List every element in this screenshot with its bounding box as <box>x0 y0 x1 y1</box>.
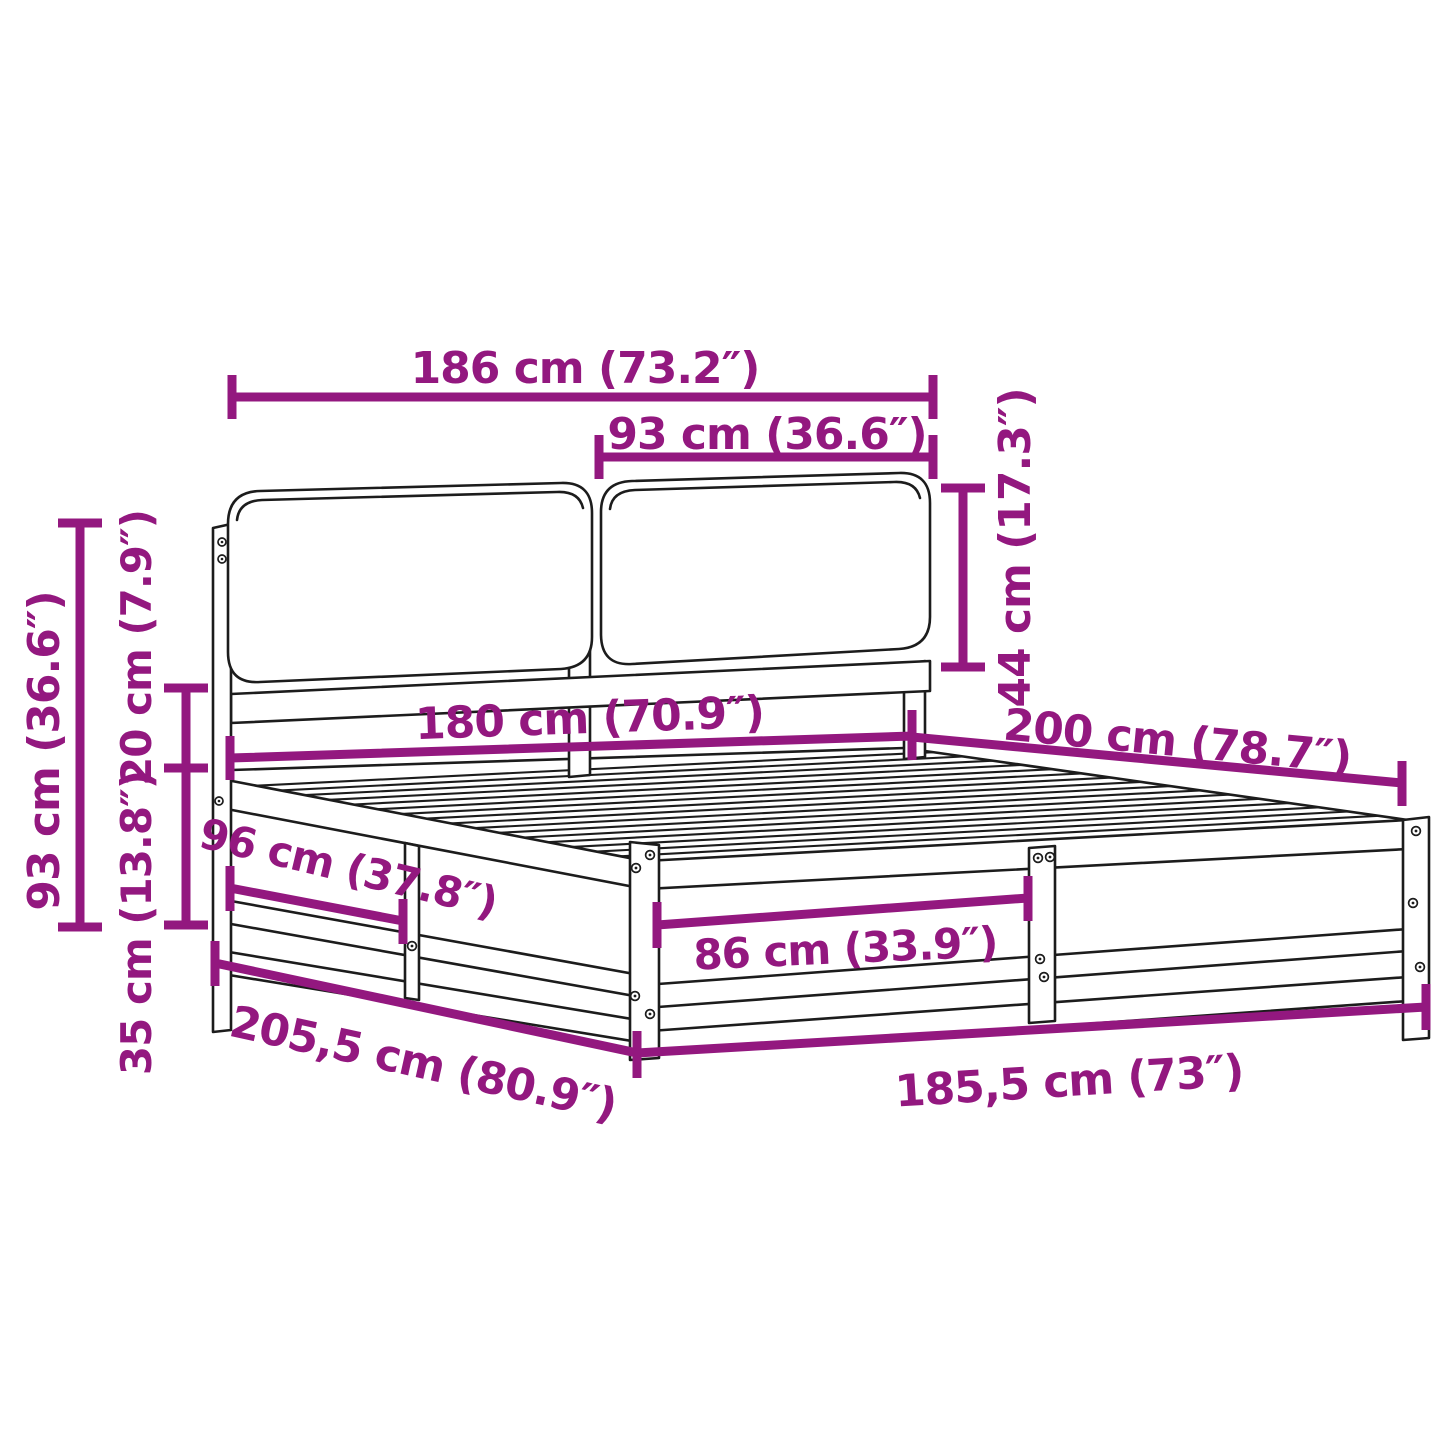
dim-gap-and-base-height: 20 cm (7.9″) 35 cm (13.8″) <box>112 510 208 1075</box>
dimension-label-headboard-total-width: 186 cm (73.2″) <box>411 343 760 394</box>
dim-cushion-width: 93 cm (36.6″) <box>599 409 933 479</box>
dimension-label-total-width: 185,5 cm (73″) <box>893 1045 1244 1117</box>
dim-cushion-height: 44 cm (17.3″) <box>941 388 1041 707</box>
dimension-label-cushion-width: 93 cm (36.6″) <box>607 409 926 460</box>
dim-side-section-length: 96 cm (37.8″) <box>195 809 502 944</box>
headboard-cushion-right <box>601 473 930 664</box>
dimension-label-headboard-height: 93 cm (36.6″) <box>19 591 70 910</box>
dim-headboard-total-width: 186 cm (73.2″) <box>232 343 933 419</box>
dimension-label-cushion-height: 44 cm (17.3″) <box>990 388 1041 707</box>
dimension-diagram-canvas: 186 cm (73.2″) 93 cm (36.6″) 44 cm (17.3… <box>0 0 1445 1445</box>
foot-middle-post <box>1029 846 1055 1023</box>
dim-total-length: 205,5 cm (80.9″) <box>215 941 637 1131</box>
dimension-label-total-length: 205,5 cm (80.9″) <box>225 996 621 1131</box>
dim-headboard-height: 93 cm (36.6″) <box>19 523 102 927</box>
headboard-cushion-left <box>228 483 592 682</box>
dimension-label-headboard-gap-height: 20 cm (7.9″) <box>112 510 161 786</box>
dimension-label-base-height: 35 cm (13.8″) <box>112 771 161 1075</box>
front-left-corner-post <box>630 842 659 1060</box>
dimension-label-bed-inner-length: 200 cm (78.7″) <box>1001 699 1353 783</box>
bed-dimension-diagram: 186 cm (73.2″) 93 cm (36.6″) 44 cm (17.3… <box>0 0 1445 1445</box>
dim-front-section-width: 86 cm (33.9″) <box>657 876 1028 980</box>
dimension-label-front-section-width: 86 cm (33.9″) <box>692 917 998 979</box>
